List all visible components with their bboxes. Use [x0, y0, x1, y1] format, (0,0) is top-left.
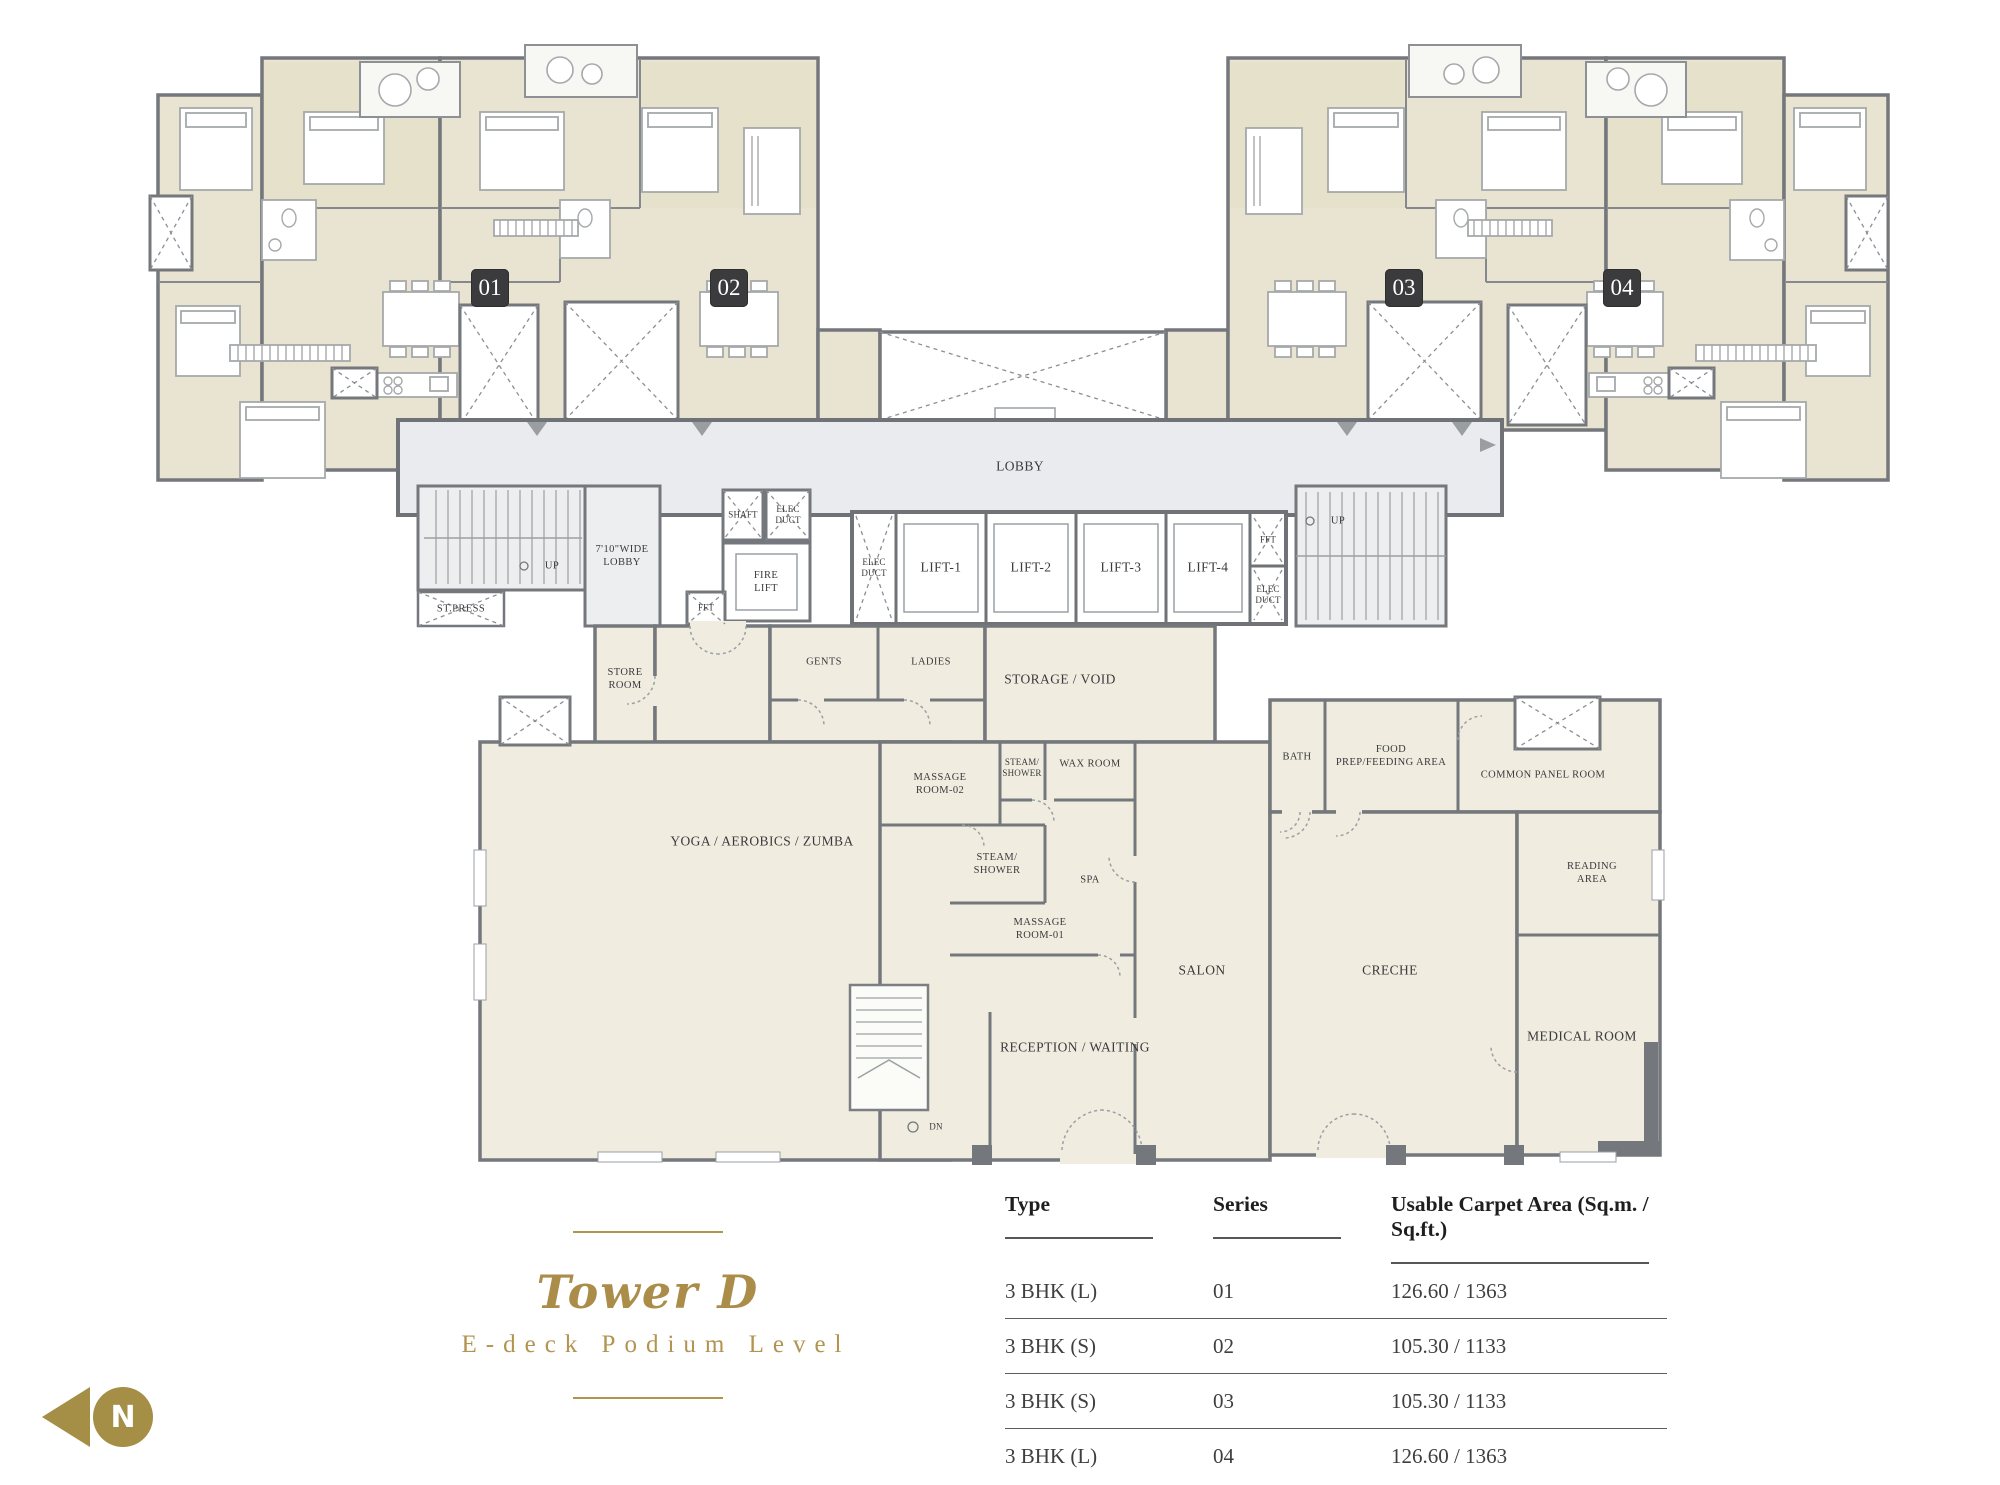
- cell-area: 105.30 / 1133: [1391, 1389, 1667, 1414]
- cell-area: 105.30 / 1133: [1391, 1334, 1667, 1359]
- label-shaft: SHAFT: [728, 509, 758, 520]
- cell-area: 126.60 / 1363: [1391, 1279, 1667, 1304]
- label-lift-3: LIFT-3: [1101, 560, 1142, 577]
- label-st-press: ST.PRESS: [437, 602, 485, 615]
- table-row: 3 BHK (L) 04 126.60 / 1363: [1005, 1428, 1667, 1483]
- cell-type: 3 BHK (L): [1005, 1279, 1213, 1304]
- unit-badge-02: 02: [710, 269, 748, 307]
- label-reception: RECEPTION / WAITING: [1000, 1040, 1150, 1057]
- cell-type: 3 BHK (L): [1005, 1444, 1213, 1469]
- north-badge: N: [93, 1387, 153, 1447]
- cell-series: 03: [1213, 1389, 1391, 1414]
- label-fft-left: FFT: [698, 602, 714, 613]
- col-type: Type: [1005, 1192, 1050, 1216]
- floorplan-page: 01 02 03 04 LOBBY UP UP 7'10"WIDELOBBY S…: [0, 0, 2000, 1485]
- label-lift-2: LIFT-2: [1011, 560, 1052, 577]
- area-table-header: Type Series Usable Carpet Area (Sq.m. / …: [1005, 1192, 1667, 1264]
- table-row: 3 BHK (S) 02 105.30 / 1133: [1005, 1318, 1667, 1373]
- cell-series: 04: [1213, 1444, 1391, 1469]
- label-fire-lift: FIRELIFT: [754, 569, 778, 595]
- unit-badge-03: 03: [1385, 269, 1423, 307]
- cell-type: 3 BHK (S): [1005, 1389, 1213, 1414]
- cell-series: 02: [1213, 1334, 1391, 1359]
- label-ladies: LADIES: [911, 655, 951, 668]
- label-elec-duct-left: ELECDUCT: [775, 504, 800, 527]
- unit-badge-01: 01: [471, 269, 509, 307]
- floorplan-graphics: [0, 0, 2000, 1485]
- label-steam-shower-lower: STEAM/SHOWER: [974, 851, 1021, 877]
- cell-area: 126.60 / 1363: [1391, 1444, 1667, 1469]
- col-series: Series: [1213, 1192, 1268, 1216]
- label-food-prep: FOODPREP/FEEDING AREA: [1336, 743, 1446, 769]
- label-gents: GENTS: [806, 655, 842, 668]
- level-subtitle: E-deck Podium Level: [462, 1331, 851, 1359]
- unit-badge-04: 04: [1603, 269, 1641, 307]
- label-medical-room: MEDICAL ROOM: [1527, 1029, 1637, 1046]
- label-elec-duct-bank: ELECDUCT: [861, 557, 886, 580]
- label-bath: BATH: [1282, 750, 1311, 763]
- label-elec-duct-right: ELECDUCT: [1255, 584, 1280, 607]
- label-lift-1: LIFT-1: [921, 560, 962, 577]
- label-up-right: UP: [1331, 514, 1345, 527]
- north-arrow-icon: [42, 1387, 90, 1447]
- label-salon: SALON: [1178, 963, 1225, 980]
- label-lobby: LOBBY: [996, 459, 1044, 476]
- cell-series: 01: [1213, 1279, 1391, 1304]
- label-storage-void: STORAGE / VOID: [1004, 672, 1116, 689]
- label-spa: SPA: [1080, 873, 1100, 886]
- label-reading-area: READINGAREA: [1567, 860, 1617, 886]
- cell-type: 3 BHK (S): [1005, 1334, 1213, 1359]
- area-table: Type Series Usable Carpet Area (Sq.m. / …: [1005, 1192, 1667, 1483]
- label-massage-room-01: MASSAGEROOM-01: [1014, 916, 1067, 942]
- label-creche: CRECHE: [1362, 963, 1418, 980]
- label-yoga: YOGA / AEROBICS / ZUMBA: [670, 834, 853, 851]
- label-massage-room-02: MASSAGEROOM-02: [914, 771, 967, 797]
- label-lift-4: LIFT-4: [1188, 560, 1229, 577]
- label-wax-room: WAX ROOM: [1059, 757, 1120, 770]
- label-dn: DN: [929, 1121, 942, 1132]
- tower-title: Tower D: [537, 1265, 760, 1319]
- title-rule-top: [573, 1231, 723, 1233]
- label-fft-right: FFT: [1260, 534, 1276, 545]
- label-wide-lobby: 7'10"WIDELOBBY: [596, 543, 649, 569]
- table-row: 3 BHK (L) 01 126.60 / 1363: [1005, 1264, 1667, 1318]
- col-carpet-area: Usable Carpet Area (Sq.m. / Sq.ft.): [1391, 1192, 1649, 1241]
- label-common-panel-room: COMMON PANEL ROOM: [1481, 768, 1605, 781]
- label-steam-shower-upper: STEAM/SHOWER: [1002, 757, 1041, 780]
- title-rule-bottom: [573, 1397, 723, 1399]
- table-row: 3 BHK (S) 03 105.30 / 1133: [1005, 1373, 1667, 1428]
- label-store-room: STOREROOM: [607, 666, 642, 692]
- label-up-left: UP: [545, 559, 559, 572]
